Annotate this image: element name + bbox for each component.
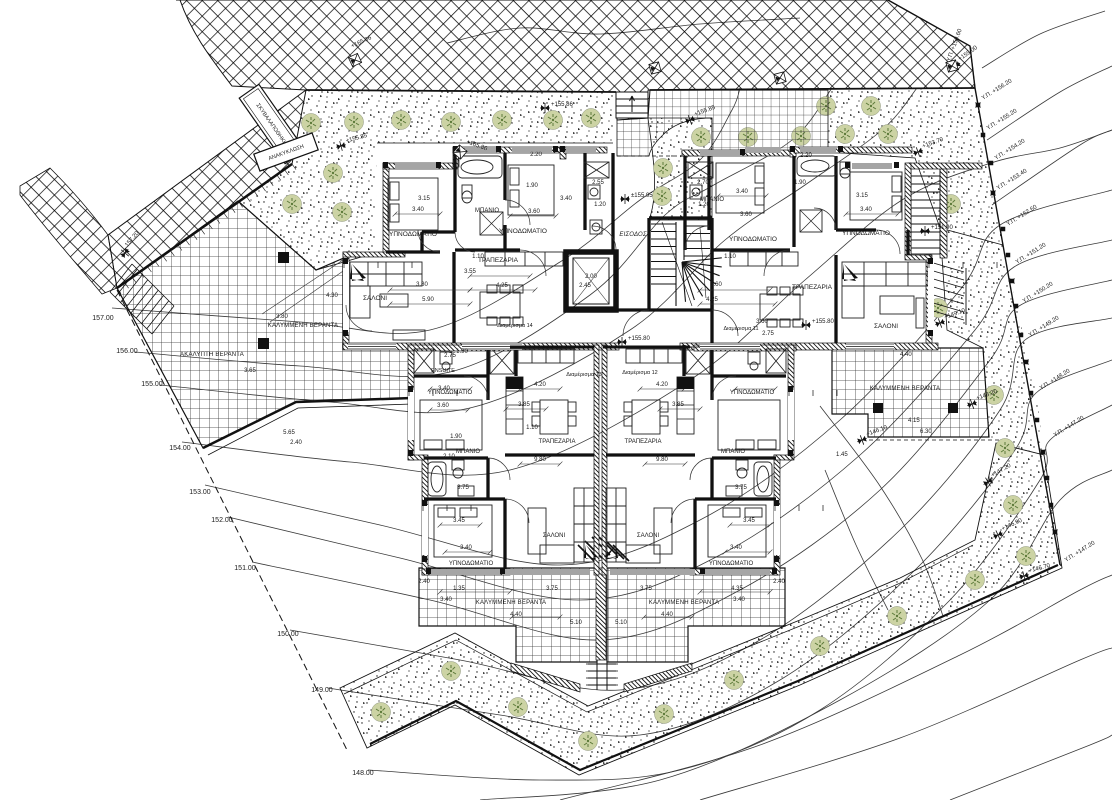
svg-text:148.00: 148.00	[352, 770, 374, 777]
svg-text:9.80: 9.80	[534, 457, 546, 463]
svg-text:3.80: 3.80	[276, 314, 288, 320]
svg-text:ΚΑΛΥΜΜΕΝΗ ΒΕΡΑΝΤΑ: ΚΑΛΥΜΜΕΝΗ ΒΕΡΑΝΤΑ	[649, 600, 719, 606]
svg-text:3.60: 3.60	[437, 403, 449, 409]
svg-text:ΥΠΝΟΔΩΜΑΤΙΟ: ΥΠΝΟΔΩΜΑΤΙΟ	[389, 231, 437, 238]
svg-text:3.40: 3.40	[440, 597, 452, 603]
svg-text:+155.86: +155.86	[551, 102, 574, 108]
svg-text:6.30: 6.30	[920, 429, 932, 435]
svg-text:157.00: 157.00	[92, 315, 114, 322]
svg-text:1.10: 1.10	[472, 254, 484, 260]
svg-text:ΣΑΛΟΝΙ: ΣΑΛΟΝΙ	[874, 323, 898, 330]
svg-text:3.60: 3.60	[710, 282, 722, 288]
svg-text:4.20: 4.20	[656, 382, 668, 388]
svg-text:ΕΙΣΟΔΟΣ: ΕΙΣΟΔΟΣ	[619, 232, 646, 238]
svg-text:2.75: 2.75	[444, 353, 456, 359]
svg-text:ΥΠΝΟΔΩΜΑΤΙΟ: ΥΠΝΟΔΩΜΑΤΙΟ	[449, 561, 494, 567]
svg-text:Υ.Π. +152.60: Υ.Π. +152.60	[1006, 204, 1039, 228]
svg-text:Διαμέρισμα 14: Διαμέρισμα 14	[497, 322, 532, 329]
svg-text:3.40: 3.40	[412, 207, 424, 213]
svg-text:ΑΚΑΛΥΠΤΗ ΒΕΡΑΝΤΑ: ΑΚΑΛΥΠΤΗ ΒΕΡΑΝΤΑ	[180, 352, 244, 358]
svg-text:3.60: 3.60	[528, 209, 540, 215]
svg-text:ΥΠΝΟΔΩΜΑΤΙΟ: ΥΠΝΟΔΩΜΑΤΙΟ	[499, 228, 547, 235]
svg-text:5.90: 5.90	[422, 297, 434, 303]
svg-text:ΤΡΑΠΕΖΑΡΙΑ: ΤΡΑΠΕΖΑΡΙΑ	[539, 439, 576, 445]
svg-text:1.90: 1.90	[456, 349, 468, 355]
svg-text:1.10: 1.10	[724, 254, 736, 260]
svg-text:ΥΠΝΟΔΩΜΑΤΙΟ: ΥΠΝΟΔΩΜΑΤΙΟ	[709, 561, 754, 567]
svg-text:ΣΑΛΟΝΙ: ΣΑΛΟΝΙ	[637, 533, 660, 539]
svg-text:ΥΠΝΟΔΩΜΑΤΙΟ: ΥΠΝΟΔΩΜΑΤΙΟ	[428, 390, 473, 396]
svg-text:3.40: 3.40	[860, 207, 872, 213]
svg-text:149.00: 149.00	[311, 687, 333, 694]
svg-text:2.10: 2.10	[443, 454, 455, 460]
svg-text:1.10: 1.10	[526, 425, 538, 431]
svg-text:Διαμέρισμα 11: Διαμέρισμα 11	[723, 325, 758, 332]
svg-text:Διαμέρισμα 12: Διαμέρισμα 12	[622, 369, 657, 376]
svg-text:ΚΑΛΥΜΜΕΝΗ ΒΕΡΑΝΤΑ: ΚΑΛΥΜΜΕΝΗ ΒΕΡΑΝΤΑ	[476, 600, 546, 606]
svg-text:Υ.Π. +147.20: Υ.Π. +147.20	[1053, 415, 1086, 439]
svg-text:3.15: 3.15	[418, 196, 430, 202]
svg-text:1.20: 1.20	[698, 202, 710, 208]
svg-text:ΚΑΛΥΜΜΕΝΗ ΒΕΡΑΝΤΑ: ΚΑΛΥΜΜΕΝΗ ΒΕΡΑΝΤΑ	[268, 323, 338, 329]
svg-text:3.75: 3.75	[546, 586, 558, 592]
svg-text:1.45: 1.45	[836, 452, 848, 458]
svg-text:2.00: 2.00	[585, 274, 597, 280]
svg-text:3.65: 3.65	[244, 368, 256, 374]
svg-text:Υ.Π. +149.20: Υ.Π. +149.20	[1028, 315, 1061, 339]
svg-text:Υ.Π. +147.20: Υ.Π. +147.20	[1064, 540, 1097, 564]
svg-text:156.00: 156.00	[116, 348, 138, 355]
svg-text:154.00: 154.00	[169, 445, 191, 452]
svg-text:3.40: 3.40	[560, 196, 572, 202]
svg-text:+155.80: +155.80	[628, 336, 651, 342]
svg-text:2.40: 2.40	[773, 579, 785, 585]
svg-text:4.25: 4.25	[496, 283, 508, 289]
svg-text:+155.80: +155.80	[812, 319, 835, 325]
svg-text:ΥΠΝΟΔΩΜΑΤΙΟ: ΥΠΝΟΔΩΜΑΤΙΟ	[730, 390, 775, 396]
svg-text:3.40: 3.40	[733, 597, 745, 603]
svg-text:1.35: 1.35	[453, 586, 465, 592]
svg-text:ΜΠΑΝΙΟ: ΜΠΑΝΙΟ	[721, 449, 745, 455]
svg-text:4.30: 4.30	[326, 293, 338, 299]
svg-text:2.55: 2.55	[592, 180, 604, 186]
svg-text:2.40: 2.40	[418, 579, 430, 585]
svg-text:3.15: 3.15	[856, 193, 868, 199]
svg-text:ΥΠΝΟΔΩΜΑΤΙΟ: ΥΠΝΟΔΩΜΑΤΙΟ	[729, 236, 777, 243]
svg-text:3.60: 3.60	[740, 212, 752, 218]
svg-text:3.40: 3.40	[438, 386, 450, 392]
svg-text:Υ.Π. +155.20: Υ.Π. +155.20	[986, 108, 1019, 132]
svg-text:Υ.Π. +150.20: Υ.Π. +150.20	[1022, 281, 1055, 305]
svg-text:4.40: 4.40	[900, 352, 912, 358]
svg-text:4.15: 4.15	[908, 418, 920, 424]
svg-text:3.40: 3.40	[730, 545, 742, 551]
svg-text:±155.95: ±155.95	[631, 193, 653, 199]
svg-text:ENSUITE: ENSUITE	[431, 368, 455, 374]
svg-text:ΤΡΑΠΕΖΑΡΙΑ: ΤΡΑΠΕΖΑΡΙΑ	[478, 257, 519, 264]
svg-text:2.20: 2.20	[530, 152, 542, 158]
svg-text:ΣΑΛΟΝΙ: ΣΑΛΟΝΙ	[543, 533, 566, 539]
svg-text:1.90: 1.90	[450, 434, 462, 440]
svg-text:3.55: 3.55	[464, 269, 476, 275]
svg-text:Υ.Π. +156.20: Υ.Π. +156.20	[981, 78, 1014, 102]
svg-text:4.20: 4.20	[534, 382, 546, 388]
svg-text:150.00: 150.00	[277, 631, 299, 638]
svg-text:+151.90: +151.90	[931, 225, 954, 231]
svg-text:5.10: 5.10	[570, 620, 582, 626]
svg-text:3.80: 3.80	[416, 282, 428, 288]
svg-text:Διαμέρισμα 13: Διαμέρισμα 13	[566, 371, 601, 378]
svg-text:Υ.Π. +151.20: Υ.Π. +151.20	[1015, 242, 1048, 266]
svg-text:3.85: 3.85	[518, 402, 530, 408]
svg-text:ΜΠΑΝΙΟ: ΜΠΑΝΙΟ	[456, 449, 480, 455]
svg-text:ΜΠΑΝΙΟ: ΜΠΑΝΙΟ	[475, 208, 499, 214]
svg-text:151.00: 151.00	[234, 565, 256, 572]
svg-text:9.80: 9.80	[656, 457, 668, 463]
svg-text:Υ.Π. +153.40: Υ.Π. +153.40	[996, 168, 1029, 192]
svg-text:2.70: 2.70	[697, 180, 709, 186]
svg-text:3.40: 3.40	[460, 545, 472, 551]
svg-text:3.75: 3.75	[640, 586, 652, 592]
svg-text:1.20: 1.20	[594, 202, 606, 208]
svg-text:5.65: 5.65	[283, 430, 295, 436]
svg-text:4.25: 4.25	[706, 297, 718, 303]
svg-text:ΤΡΑΠΕΖΑΡΙΑ: ΤΡΑΠΕΖΑΡΙΑ	[625, 439, 662, 445]
svg-text:ΚΑΛΥΜΜΕΝΗ ΒΕΡΑΝΤΑ: ΚΑΛΥΜΜΕΝΗ ΒΕΡΑΝΤΑ	[870, 386, 940, 392]
svg-text:1.90: 1.90	[526, 183, 538, 189]
svg-text:Υ.Π. +148.20: Υ.Π. +148.20	[1039, 368, 1072, 392]
svg-text:3.45: 3.45	[743, 518, 755, 524]
svg-text:3.60: 3.60	[756, 319, 768, 325]
svg-text:ΣΑΛΟΝΙ: ΣΑΛΟΝΙ	[363, 295, 387, 302]
svg-text:3.75: 3.75	[457, 485, 469, 491]
svg-text:2.75: 2.75	[762, 331, 774, 337]
svg-text:2.45: 2.45	[579, 283, 591, 289]
svg-text:5.10: 5.10	[615, 620, 627, 626]
svg-text:3.75: 3.75	[735, 485, 747, 491]
svg-text:2.40: 2.40	[290, 440, 302, 446]
svg-text:3.85: 3.85	[672, 402, 684, 408]
svg-text:3.40: 3.40	[736, 189, 748, 195]
svg-text:4.35: 4.35	[731, 586, 743, 592]
svg-text:ΥΠΝΟΔΩΜΑΤΙΟ: ΥΠΝΟΔΩΜΑΤΙΟ	[842, 230, 890, 237]
svg-text:ΤΡΑΠΕΖΑΡΙΑ: ΤΡΑΠΕΖΑΡΙΑ	[792, 284, 833, 291]
svg-text:3.45: 3.45	[453, 518, 465, 524]
svg-text:155.00: 155.00	[141, 381, 163, 388]
svg-text:1.90: 1.90	[794, 180, 806, 186]
svg-text:153.00: 153.00	[189, 489, 211, 496]
svg-text:2.20: 2.20	[800, 153, 812, 159]
svg-text:152.00: 152.00	[211, 517, 233, 524]
